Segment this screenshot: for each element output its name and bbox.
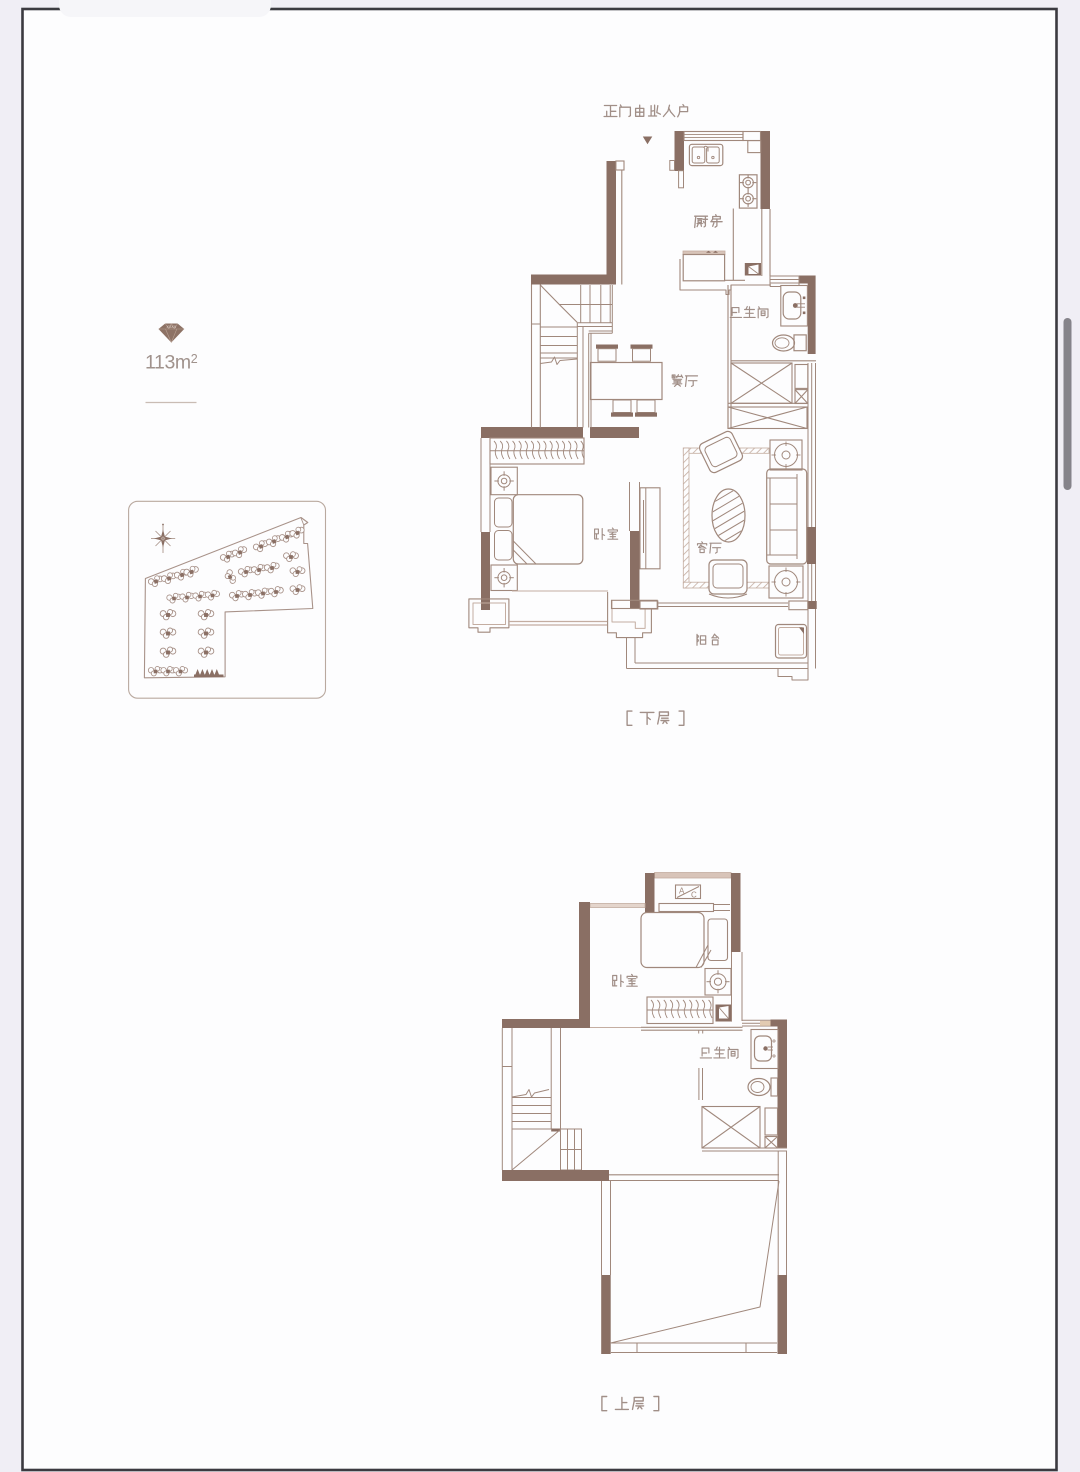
svg-text:113m2: 113m2 bbox=[145, 352, 198, 374]
svg-text:C: C bbox=[691, 891, 697, 900]
svg-text:XXXX: XXXX bbox=[167, 325, 177, 329]
svg-text:A: A bbox=[679, 887, 685, 896]
